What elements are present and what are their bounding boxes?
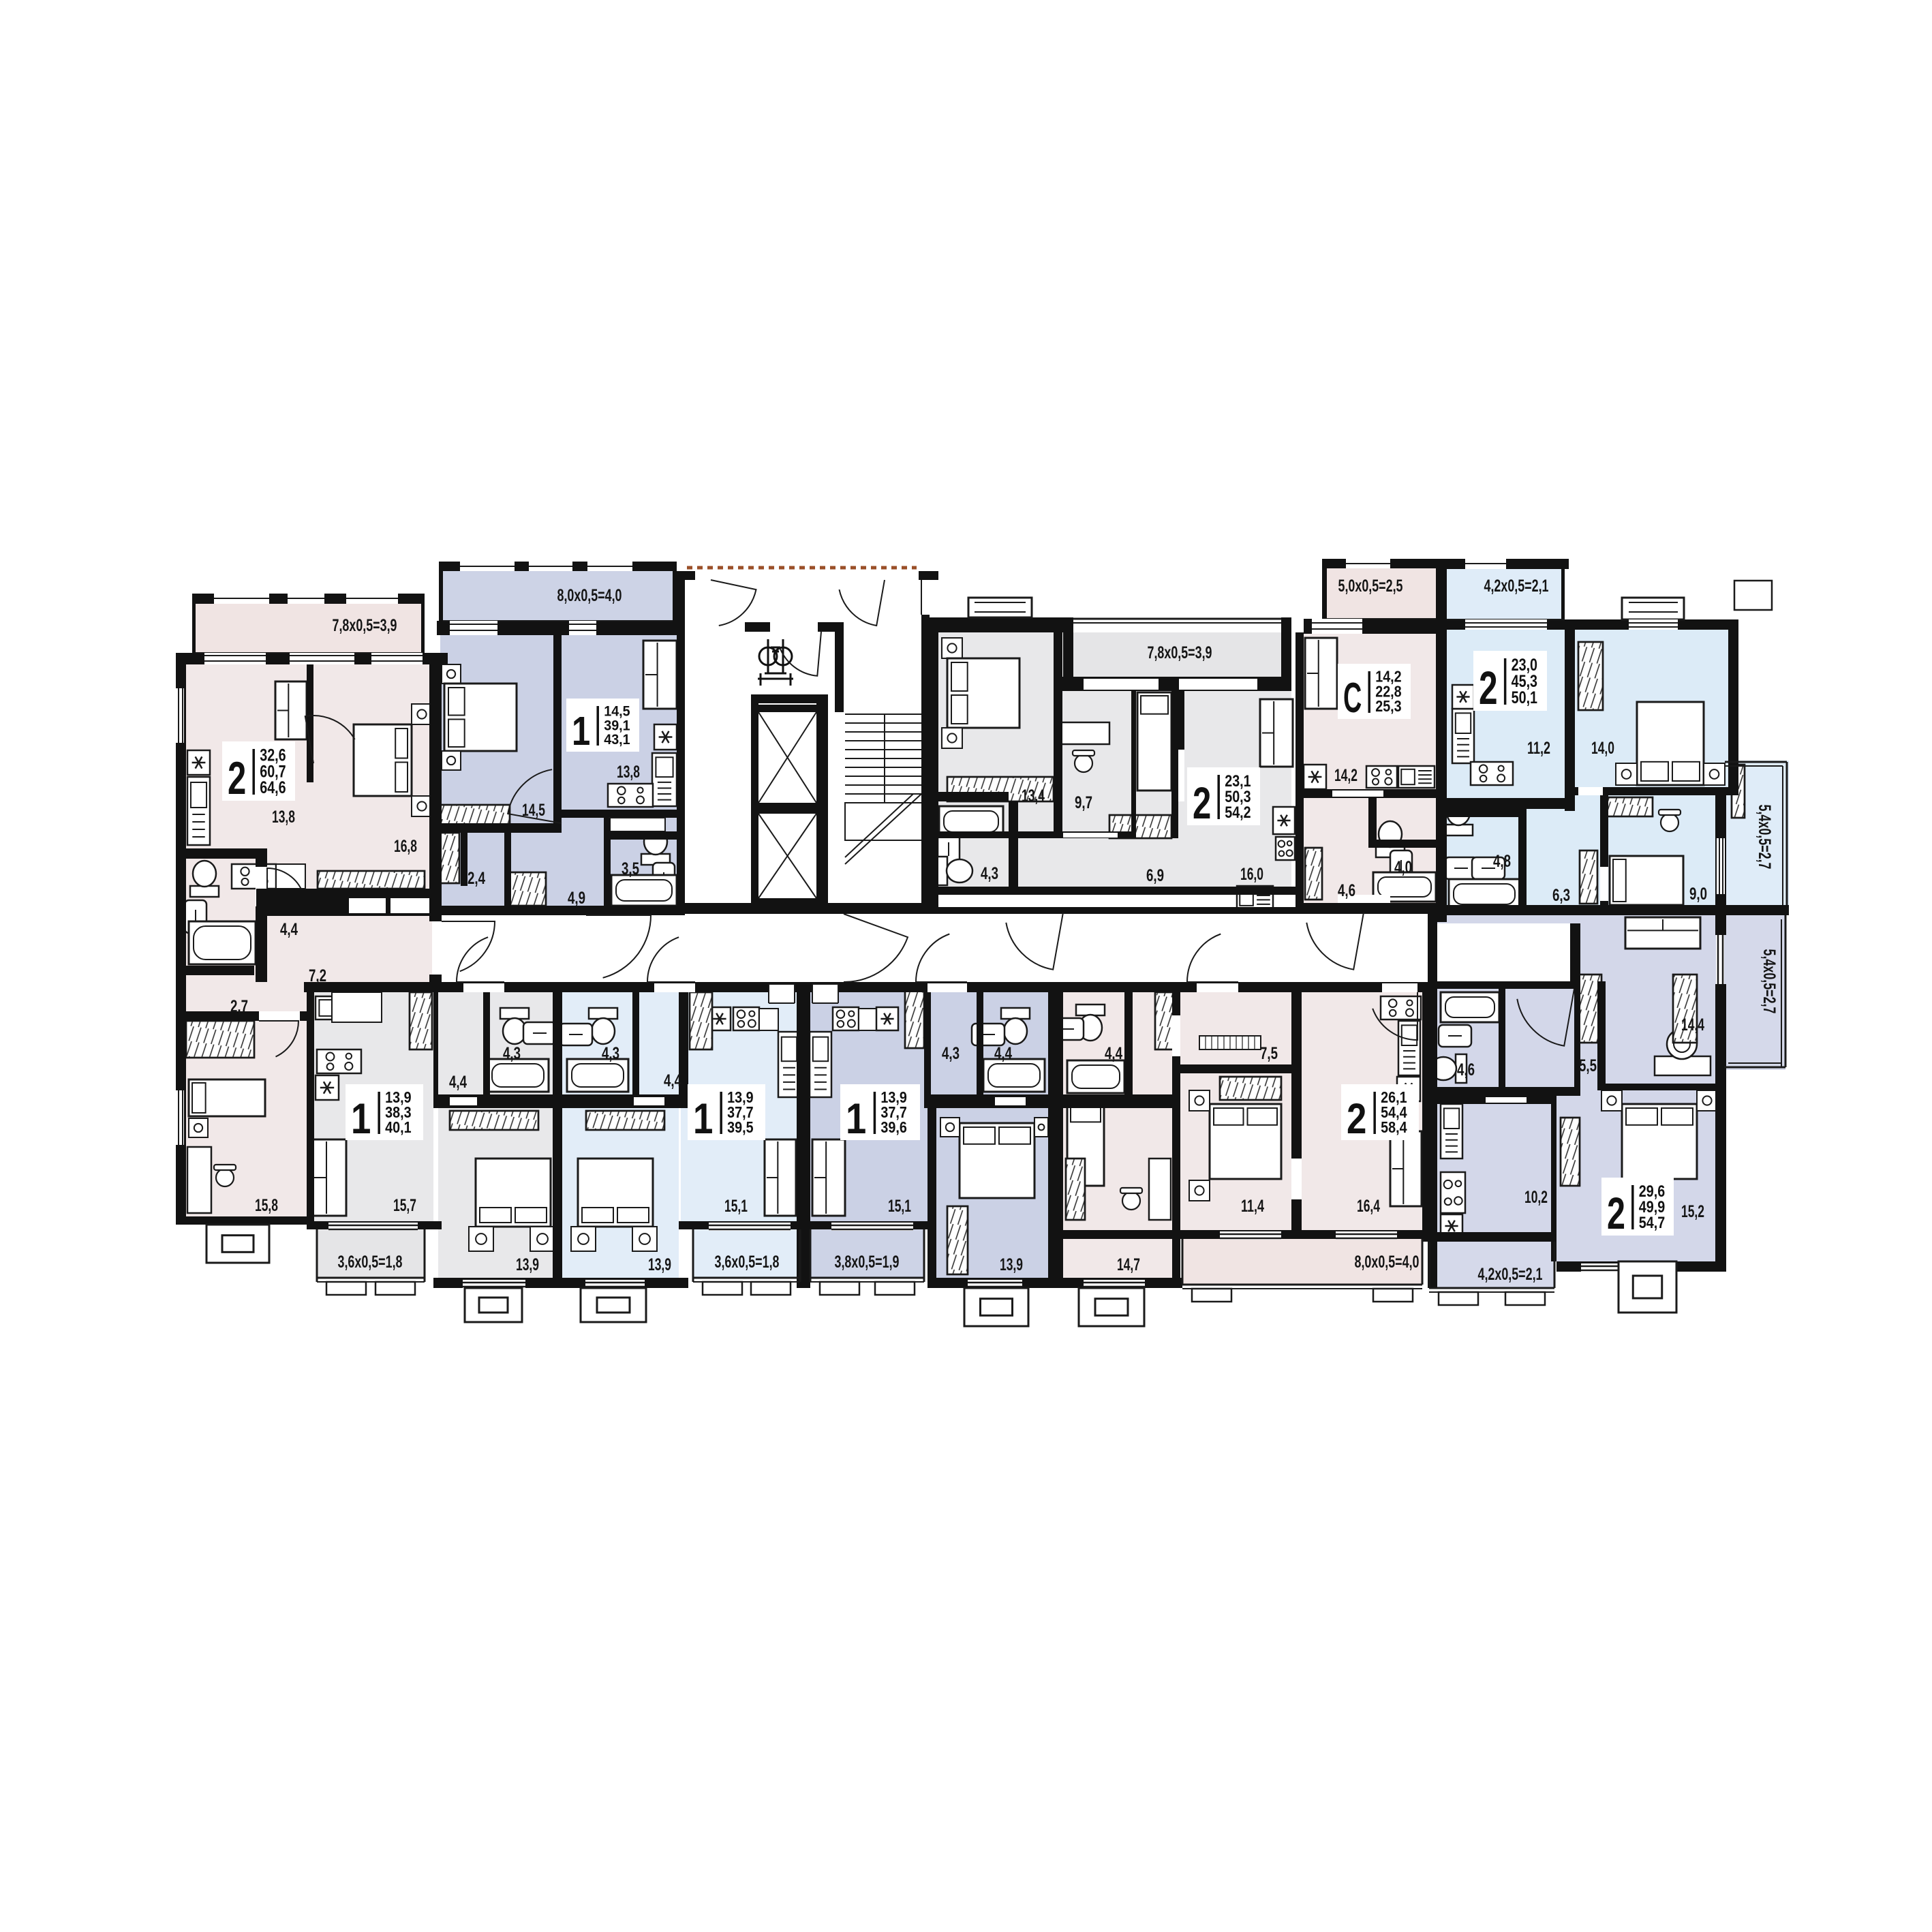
svg-text:13,8: 13,8 xyxy=(272,808,295,827)
svg-text:10,2: 10,2 xyxy=(1524,1188,1548,1207)
svg-text:13,9: 13,9 xyxy=(648,1255,671,1274)
svg-text:58,4: 58,4 xyxy=(1381,1118,1407,1136)
svg-text:7,8x0,5=3,9: 7,8x0,5=3,9 xyxy=(1148,643,1212,662)
svg-text:15,1: 15,1 xyxy=(724,1197,748,1216)
svg-text:7,2: 7,2 xyxy=(309,966,326,985)
svg-text:11,4: 11,4 xyxy=(1241,1197,1264,1216)
svg-text:4,2x0,5=2,1: 4,2x0,5=2,1 xyxy=(1478,1265,1543,1284)
svg-text:5,0x0,5=2,5: 5,0x0,5=2,5 xyxy=(1338,577,1403,596)
svg-text:14,4: 14,4 xyxy=(1681,1015,1704,1034)
svg-text:8,0x0,5=4,0: 8,0x0,5=4,0 xyxy=(1355,1253,1420,1272)
svg-text:2: 2 xyxy=(1607,1189,1625,1238)
svg-text:2: 2 xyxy=(228,753,246,804)
svg-text:64,6: 64,6 xyxy=(260,779,286,797)
svg-text:4,0: 4,0 xyxy=(1394,858,1412,877)
svg-text:13,9: 13,9 xyxy=(516,1255,539,1274)
svg-text:16,0: 16,0 xyxy=(1240,865,1263,884)
svg-text:14,5: 14,5 xyxy=(522,801,545,820)
svg-text:3,6x0,5=1,8: 3,6x0,5=1,8 xyxy=(338,1253,403,1272)
svg-text:39,6: 39,6 xyxy=(880,1118,907,1136)
svg-text:13,8: 13,8 xyxy=(617,763,640,782)
svg-text:4,3: 4,3 xyxy=(602,1044,619,1063)
svg-text:15,1: 15,1 xyxy=(888,1197,911,1216)
svg-text:16,4: 16,4 xyxy=(1357,1197,1380,1216)
svg-text:6,3: 6,3 xyxy=(1552,886,1570,905)
svg-text:4,9: 4,9 xyxy=(568,889,585,908)
svg-text:14,0: 14,0 xyxy=(1591,739,1614,758)
svg-text:4,3: 4,3 xyxy=(942,1044,960,1063)
svg-text:4,4: 4,4 xyxy=(994,1044,1012,1063)
svg-text:15,2: 15,2 xyxy=(1681,1202,1704,1221)
svg-text:11,2: 11,2 xyxy=(1527,739,1550,758)
svg-text:2: 2 xyxy=(1347,1095,1366,1143)
svg-text:3,5: 3,5 xyxy=(622,859,639,878)
svg-text:4,4: 4,4 xyxy=(449,1073,467,1092)
svg-text:2: 2 xyxy=(1479,662,1498,714)
svg-text:14,2: 14,2 xyxy=(1334,766,1358,785)
svg-text:25,3: 25,3 xyxy=(1375,697,1401,715)
svg-text:2,7: 2,7 xyxy=(230,997,248,1016)
svg-text:4,6: 4,6 xyxy=(1457,1060,1475,1079)
svg-text:7,5: 7,5 xyxy=(1260,1044,1278,1063)
svg-text:3,6x0,5=1,8: 3,6x0,5=1,8 xyxy=(715,1253,780,1272)
svg-text:13,9: 13,9 xyxy=(1000,1255,1023,1274)
svg-text:4,4: 4,4 xyxy=(280,920,298,939)
svg-text:2: 2 xyxy=(1193,778,1211,828)
svg-text:C: C xyxy=(1343,675,1362,722)
svg-text:5,5: 5,5 xyxy=(1579,1056,1597,1075)
svg-text:4,6: 4,6 xyxy=(1338,881,1355,900)
svg-text:43,1: 43,1 xyxy=(604,731,630,748)
svg-text:15,7: 15,7 xyxy=(393,1196,416,1215)
svg-text:13,4: 13,4 xyxy=(1022,786,1045,806)
svg-text:1: 1 xyxy=(572,709,590,754)
svg-text:6,9: 6,9 xyxy=(1146,866,1164,885)
svg-text:54,7: 54,7 xyxy=(1639,1214,1665,1232)
svg-text:1: 1 xyxy=(351,1095,371,1143)
svg-text:4,8: 4,8 xyxy=(1493,852,1511,871)
svg-text:54,2: 54,2 xyxy=(1225,803,1251,822)
svg-text:40,1: 40,1 xyxy=(385,1118,412,1136)
svg-text:1: 1 xyxy=(693,1095,713,1143)
svg-text:5,4x0,5=2,7: 5,4x0,5=2,7 xyxy=(1760,949,1779,1014)
svg-text:4,4: 4,4 xyxy=(1105,1044,1122,1063)
svg-text:5,4x0,5=2,7: 5,4x0,5=2,7 xyxy=(1755,805,1774,870)
svg-text:1: 1 xyxy=(846,1095,866,1143)
svg-text:50,1: 50,1 xyxy=(1512,688,1537,707)
svg-text:9,0: 9,0 xyxy=(1689,885,1707,904)
svg-text:2,4: 2,4 xyxy=(467,869,485,888)
svg-text:15,8: 15,8 xyxy=(255,1196,278,1215)
svg-text:4,3: 4,3 xyxy=(503,1044,521,1063)
svg-text:7,8x0,5=3,9: 7,8x0,5=3,9 xyxy=(333,616,397,635)
svg-text:3,8x0,5=1,9: 3,8x0,5=1,9 xyxy=(835,1253,900,1272)
svg-text:4,4: 4,4 xyxy=(664,1071,681,1090)
svg-text:4,3: 4,3 xyxy=(981,864,998,883)
svg-text:4,2x0,5=2,1: 4,2x0,5=2,1 xyxy=(1484,577,1549,596)
svg-text:14,7: 14,7 xyxy=(1117,1255,1140,1274)
svg-text:8,0x0,5=4,0: 8,0x0,5=4,0 xyxy=(557,586,622,605)
svg-text:39,5: 39,5 xyxy=(727,1118,754,1136)
svg-text:16,8: 16,8 xyxy=(394,837,417,856)
svg-text:9,7: 9,7 xyxy=(1075,793,1092,812)
